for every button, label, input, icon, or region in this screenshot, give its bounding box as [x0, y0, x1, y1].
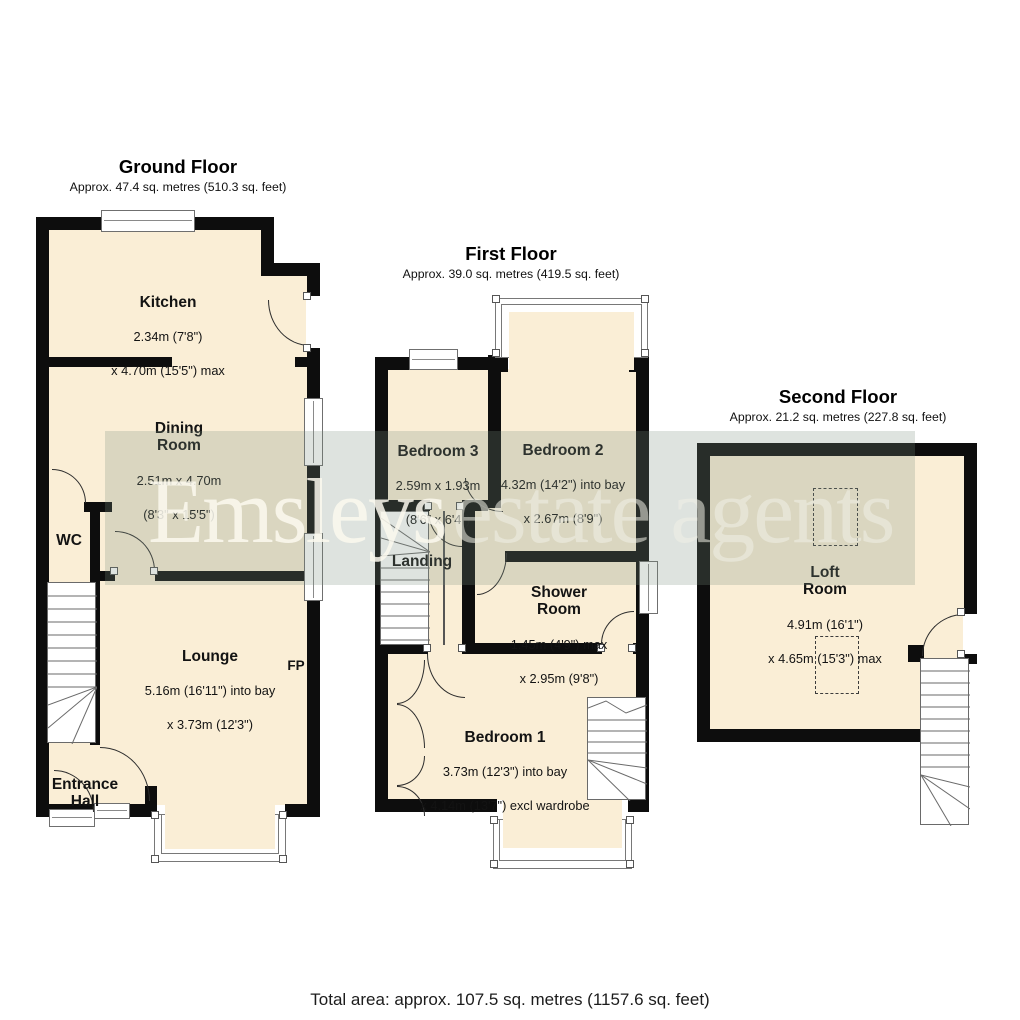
- bay-post: [151, 811, 159, 819]
- room-label-entrance-hall: Entrance Hall: [52, 758, 118, 829]
- wall: [964, 443, 977, 618]
- wall: [505, 551, 649, 562]
- room-label-dining-room: Dining Room 2.51m x 4.70m (8'3" x 15'5"): [137, 402, 222, 541]
- bay-post: [279, 855, 287, 863]
- total-area-caption: Total area: approx. 107.5 sq. metres (11…: [310, 990, 709, 1010]
- wall: [462, 551, 475, 654]
- room-name: Bedroom 2: [501, 442, 625, 459]
- floor-title-ground: Ground Floor Approx. 47.4 sq. metres (51…: [70, 157, 287, 194]
- wall: [697, 443, 977, 456]
- room-name: Entrance Hall: [52, 776, 118, 811]
- floor-area: Approx. 21.2 sq. metres (227.8 sq. feet): [730, 410, 947, 424]
- room-dims: x 2.95m (9'8"): [511, 671, 608, 687]
- room-label-bedroom-3: Bedroom 3 2.59m x 1.93m (8'6" x 6'4"): [396, 425, 481, 546]
- room-label-wc: WC: [56, 514, 82, 567]
- door-jamb: [303, 292, 311, 300]
- room-dims: 1.45m (4'9") max: [511, 637, 608, 653]
- floor-area: Approx. 39.0 sq. metres (419.5 sq. feet): [403, 267, 620, 281]
- bay-post: [151, 855, 159, 863]
- door-jamb: [628, 644, 636, 652]
- room-name: WC: [56, 532, 82, 549]
- window: [409, 349, 458, 370]
- room-dims: 2.34m (7'8"): [111, 329, 225, 345]
- window: [304, 533, 323, 601]
- door-jamb: [303, 344, 311, 352]
- room-name: Shower Room: [511, 584, 608, 619]
- floorplan-canvas: Ground Floor Approx. 47.4 sq. metres (51…: [0, 0, 1020, 1020]
- bay-window-floor: [165, 805, 275, 849]
- room-label-loft-room: Loft Room 4.91m (16'1") x 4.65m (15'3") …: [768, 546, 882, 685]
- bay-post: [641, 349, 649, 357]
- door-jamb: [423, 644, 431, 652]
- restricted-height-area: [813, 488, 858, 546]
- room-label-bedroom-2: Bedroom 2 4.32m (14'2") into bay x 2.67m…: [501, 424, 625, 545]
- room-name: Lounge: [145, 648, 276, 665]
- stairs: [920, 658, 969, 825]
- bay-post: [490, 860, 498, 868]
- bay-post: [279, 811, 287, 819]
- room-label-lounge: Lounge 5.16m (16'11") into bay x 3.73m (…: [145, 630, 276, 751]
- wall: [697, 729, 924, 742]
- room-name: Kitchen: [111, 294, 225, 311]
- door-jamb: [150, 567, 158, 575]
- room-name: Bedroom 3: [396, 443, 481, 460]
- room-label-shower-room: Shower Room 1.45m (4'9") max x 2.95m (9'…: [511, 566, 608, 705]
- room-name: Loft Room: [768, 564, 882, 599]
- bay-window-floor: [509, 312, 634, 370]
- wall: [697, 443, 710, 742]
- door-opening: [963, 614, 978, 654]
- room-dims: x 4.70m (15'5") max: [111, 363, 225, 379]
- door-jamb: [458, 644, 466, 652]
- room-fill-kitchen: [48, 229, 261, 277]
- floor-area: Approx. 47.4 sq. metres (510.3 sq. feet): [70, 180, 287, 194]
- room-name: Bedroom 1: [420, 729, 589, 746]
- room-dims: 2.59m x 1.93m: [396, 478, 481, 494]
- bay-post: [626, 860, 634, 868]
- wall: [285, 804, 320, 817]
- bay-post: [492, 295, 500, 303]
- room-label-kitchen: Kitchen 2.34m (7'8") x 4.70m (15'5") max: [111, 276, 225, 397]
- fireplace-label: FP: [287, 658, 304, 673]
- room-dims: 5.16m (16'11") into bay: [145, 683, 276, 699]
- room-label-bedroom-1: Bedroom 1 3.73m (12'3") into bay x 4.14m…: [420, 711, 589, 832]
- room-name: Landing: [392, 553, 452, 570]
- room-dims: 4.91m (16'1"): [768, 617, 882, 633]
- bay-post: [641, 295, 649, 303]
- door-jamb: [110, 567, 118, 575]
- room-dims: x 2.67m (8'9"): [501, 511, 625, 527]
- floor-title: First Floor: [403, 244, 620, 264]
- floor-title: Ground Floor: [70, 157, 287, 177]
- door-jamb: [957, 650, 965, 658]
- room-dims: (8'3" x 15'5"): [137, 507, 222, 523]
- bay-post: [492, 349, 500, 357]
- window: [304, 398, 323, 466]
- room-dims: x 4.65m (15'3") max: [768, 651, 882, 667]
- room-dims: 4.32m (14'2") into bay: [501, 477, 625, 493]
- wall: [155, 571, 308, 581]
- stairs: [47, 582, 96, 743]
- room-dims: (8'6" x 6'4"): [396, 512, 481, 528]
- room-dims: 2.51m x 4.70m: [137, 473, 222, 489]
- door-jamb: [957, 608, 965, 616]
- room-dims: 3.73m (12'3") into bay: [420, 764, 589, 780]
- floor-title: Second Floor: [730, 387, 947, 407]
- room-dims: x 4.14m (13'7") excl wardrobe: [420, 798, 589, 814]
- floor-title-second: Second Floor Approx. 21.2 sq. metres (22…: [730, 387, 947, 424]
- window: [101, 210, 195, 232]
- room-dims: x 3.73m (12'3"): [145, 717, 276, 733]
- window: [639, 561, 658, 614]
- room-name: Dining Room: [137, 420, 222, 455]
- wall: [295, 357, 308, 367]
- stairs: [587, 697, 646, 800]
- floor-title-first: First Floor Approx. 39.0 sq. metres (419…: [403, 244, 620, 281]
- room-label-landing: Landing: [392, 535, 452, 588]
- bay-post: [626, 816, 634, 824]
